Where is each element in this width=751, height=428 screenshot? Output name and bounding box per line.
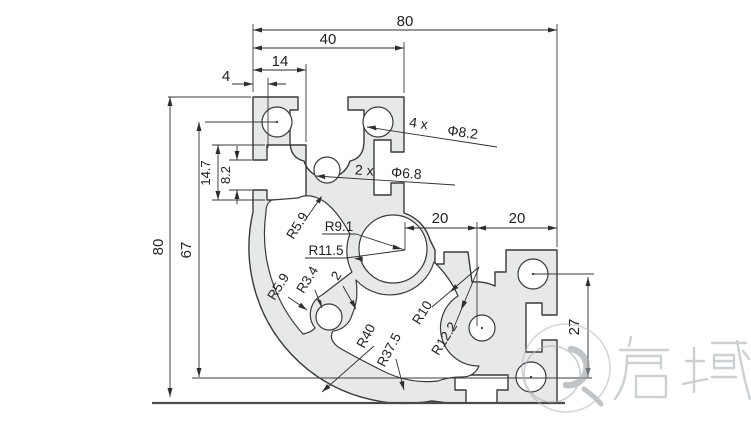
dim-slot-opening: 8.2 [218,166,233,184]
brand-glyph-qi [615,337,668,399]
dim-slot-lip: 4 [222,68,230,85]
dim-right-pitch-a: 20 [432,210,449,227]
logo-q-tail [584,389,601,404]
dim-hole-span-vertical: 67 [178,242,195,259]
dim-slot-depth: 14 [272,53,289,70]
logo-q-swirl [566,349,587,385]
profile-drawing-svg: 80 40 14 4 80 67 14.7 8.2 20 20 27 4 x Φ… [0,0,751,428]
callout-corner-dia: Φ8.2 [446,122,479,142]
dim-slot-height: 14.7 [198,160,213,185]
drawing-canvas: 80 40 14 4 80 67 14.7 8.2 20 20 27 4 x Φ… [0,0,751,428]
callout-center-count: 2 x [354,161,374,178]
callout-corner-count: 4 x [408,114,429,132]
corner-hole-2 [363,107,393,137]
center-hole-1 [314,157,340,183]
dim-top-arm-width: 40 [320,31,337,48]
brand-glyph-yu [683,341,750,399]
dim-left-overall: 80 [150,239,167,256]
dim-top-overall: 80 [397,13,414,30]
label-ring-inner: R9.1 [325,219,354,234]
keyhole-bore [316,304,342,330]
dim-right-pitch-b: 20 [509,210,526,227]
callout-center-dia: Φ6.8 [391,164,423,182]
label-ring-outer: R11.5 [308,243,343,258]
